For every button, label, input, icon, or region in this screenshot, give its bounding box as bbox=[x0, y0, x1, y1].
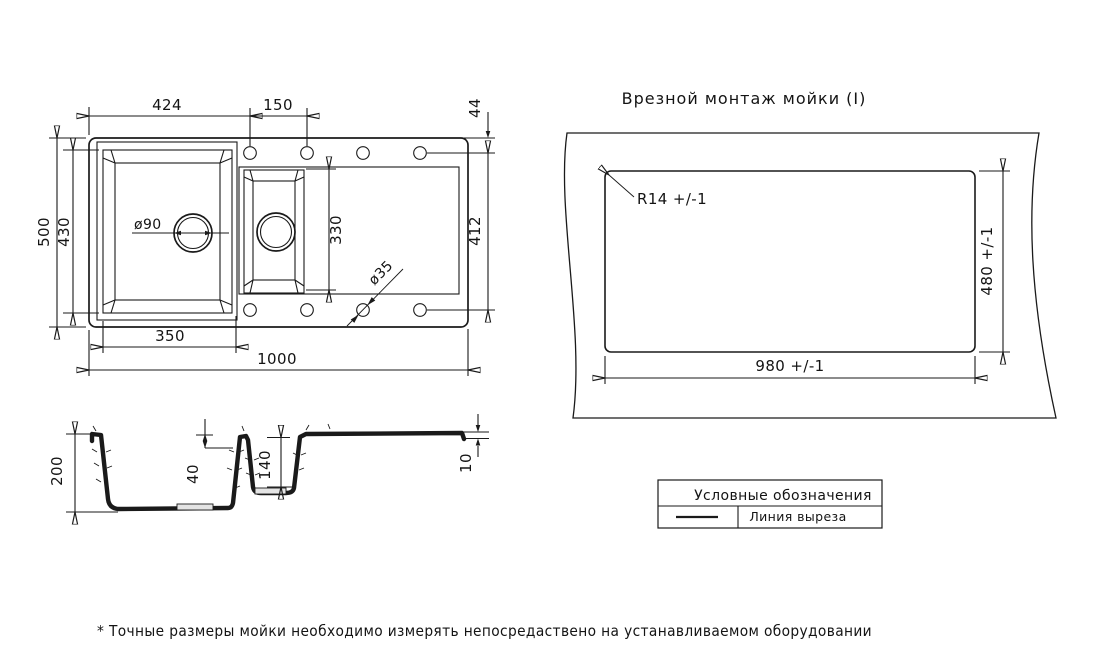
small-bowl-opening bbox=[253, 181, 295, 280]
main-drain-label: ø90 bbox=[134, 217, 162, 233]
main-bowl-opening bbox=[115, 163, 220, 300]
dim-200-label: 200 bbox=[48, 456, 66, 486]
dim-350-label: 350 bbox=[155, 327, 185, 345]
main-bowl-outer bbox=[97, 142, 237, 320]
legend-cut-line-label: Линия выреза bbox=[749, 509, 846, 524]
dim-412-label: 412 bbox=[466, 216, 484, 246]
small-drain-icon bbox=[257, 213, 295, 251]
faucet-hole-label: ø35 bbox=[366, 258, 397, 289]
dim-500-label: 500 bbox=[35, 217, 53, 247]
dim-10-lines bbox=[464, 414, 489, 457]
corner-radius-label: R14 +/-1 bbox=[637, 190, 707, 208]
section-view: 200 40 140 10 bbox=[48, 414, 489, 512]
plan-view: ø90 ø35 424 150 44 412 bbox=[35, 96, 495, 376]
legend-title: Условные обозначения bbox=[694, 488, 872, 504]
small-drain-inner bbox=[261, 217, 292, 248]
small-drain-recess bbox=[255, 488, 286, 494]
dim-330-label: 330 bbox=[327, 215, 345, 245]
drainboard-rect bbox=[239, 167, 459, 294]
section-profile bbox=[92, 433, 464, 509]
dim-980-label: 980 +/-1 bbox=[755, 357, 824, 375]
drawing-sheet: ø90 ø35 424 150 44 412 bbox=[0, 0, 1116, 658]
cutout-view-title: Врезной монтаж мойки (I) bbox=[622, 89, 867, 108]
legend: Условные обозначения Линия выреза bbox=[658, 480, 882, 528]
dim-140-label: 140 bbox=[256, 450, 274, 480]
dim-40-lines bbox=[196, 419, 233, 448]
footnote: * Точные размеры мойки необходимо измеря… bbox=[97, 622, 872, 640]
dim-1000-label: 1000 bbox=[257, 350, 297, 368]
dim-430-label: 430 bbox=[55, 217, 73, 247]
dim-424-label: 424 bbox=[152, 96, 182, 114]
dim-10-label: 10 bbox=[457, 453, 475, 473]
radius-leader bbox=[609, 175, 634, 197]
dim-44-label: 44 bbox=[466, 98, 484, 118]
dim-40-label: 40 bbox=[184, 464, 202, 484]
dim-480-label: 480 +/-1 bbox=[978, 226, 996, 295]
cutout-view: Врезной монтаж мойки (I) R14 +/-1 480 +/… bbox=[564, 89, 1056, 418]
drawing-canvas: ø90 ø35 424 150 44 412 bbox=[0, 0, 1116, 658]
dim-412-lines bbox=[427, 153, 495, 310]
main-drain-recess bbox=[177, 504, 213, 510]
dim-150-label: 150 bbox=[263, 96, 293, 114]
